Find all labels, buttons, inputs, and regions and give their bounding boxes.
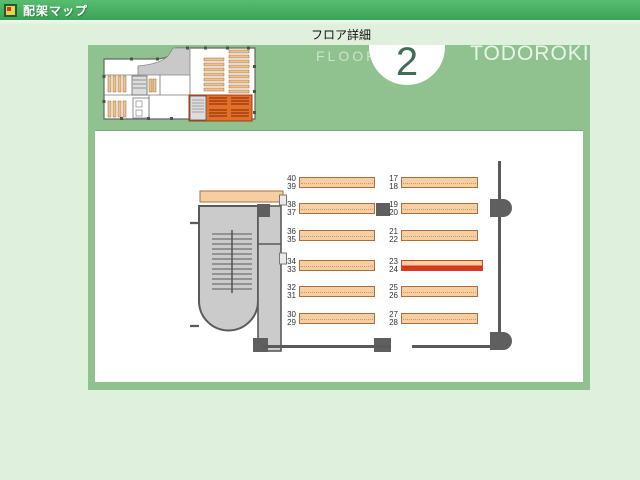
shelf-label-40-39: 4039 [273,175,296,191]
shelf-label-25-26: 2526 [375,284,398,300]
shelf-label-32-31: 3231 [273,284,296,300]
shelf-21-22[interactable] [401,230,478,241]
location-name: TODOROKI [470,42,588,66]
shelf-label-17-18: 1718 [375,175,398,191]
floor-detail-map: 4039 1718 3837 1920 3635 2122 3433 2324 … [95,130,583,382]
shelf-17-18[interactable] [401,177,478,188]
thumb-stairwell-upper [132,76,147,95]
shelf-label-21-22: 2122 [375,228,398,244]
floor-map-structure [95,131,583,383]
shelf-row: 3231 2526 [95,284,583,301]
shelf-23-24-highlighted[interactable] [401,260,483,271]
shelf-row: 3837 1920 [95,201,583,218]
shelf-36-35[interactable] [299,230,375,241]
shelf-label-23-24: 2324 [375,258,398,274]
titlebar: 配架マップ [0,0,640,20]
shelf-30-29[interactable] [299,313,375,324]
shelf-label-36-35: 3635 [273,228,296,244]
shelf-25-26[interactable] [401,286,478,297]
page-label: フロア詳細 [311,26,371,43]
shelf-row: 3029 2728 [95,311,583,328]
shelf-34-33[interactable] [299,260,375,271]
window-title: 配架マップ [23,2,88,19]
wall-knob-bottom [490,332,512,350]
shelf-40-39[interactable] [299,177,375,188]
floor-thumbnail-map[interactable] [100,45,258,122]
titlebar-shadow [0,20,640,25]
shelf-32-31[interactable] [299,286,375,297]
shelf-label-30-29: 3029 [273,311,296,327]
shelf-38-37[interactable] [299,203,375,214]
shelf-label-34-33: 3433 [273,258,296,274]
shelf-label-27-28: 2728 [375,311,398,327]
floor-number: 2 [369,42,445,82]
floor-number-badge: 2 [369,45,445,85]
shelf-row: 3635 2122 [95,228,583,245]
shelf-label-38-37: 3837 [273,201,296,217]
shelf-19-20[interactable] [401,203,478,214]
shelf-label-19-20: 1920 [375,201,398,217]
shelf-27-28[interactable] [401,313,478,324]
app-window: 配架マップ フロア詳細 [0,0,640,480]
thumb-current-region[interactable] [189,95,252,121]
map-app-icon [4,4,17,17]
shelf-row: 3433 2324 [95,258,583,275]
shelf-row: 4039 1718 [95,175,583,192]
